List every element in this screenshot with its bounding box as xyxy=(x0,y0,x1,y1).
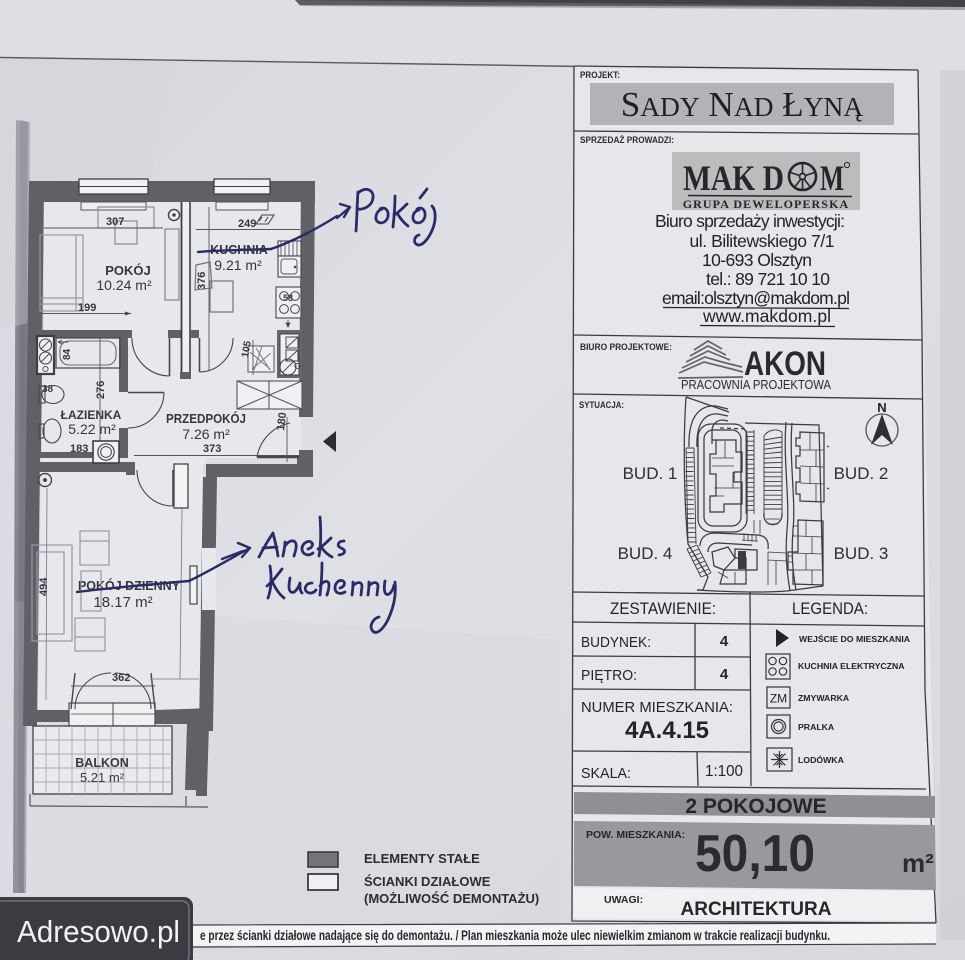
svg-text:307: 307 xyxy=(106,216,124,228)
svg-text:249: 249 xyxy=(238,218,256,230)
svg-text:84: 84 xyxy=(62,348,73,360)
svg-text:9.21 m²: 9.21 m² xyxy=(214,257,262,273)
svg-text:5.22 m²: 5.22 m² xyxy=(68,421,116,437)
svg-text:183: 183 xyxy=(70,443,88,455)
svg-text:376: 376 xyxy=(196,272,208,290)
svg-text:1:100: 1:100 xyxy=(705,763,743,780)
svg-text:ŁAZIENKA: ŁAZIENKA xyxy=(61,408,122,422)
svg-text:email:olsztyn@makdom.pl: email:olsztyn@makdom.pl xyxy=(662,288,850,308)
svg-text:7.26 m²: 7.26 m² xyxy=(182,426,230,442)
svg-text:N: N xyxy=(877,400,886,415)
svg-text:Adresowo.pl: Adresowo.pl xyxy=(17,914,180,949)
svg-text:www.makdom.pl: www.makdom.pl xyxy=(702,306,831,326)
svg-text:BUD. 2: BUD. 2 xyxy=(834,464,889,483)
svg-text:ŚCIANKI DZIAŁOWE: ŚCIANKI DZIAŁOWE xyxy=(364,874,491,889)
svg-text:2 POKOJOWE: 2 POKOJOWE xyxy=(685,795,826,818)
svg-text:ZESTAWIENIE:: ZESTAWIENIE: xyxy=(610,599,716,618)
svg-text:WEJŚCIE DO MIESZKANIA: WEJŚCIE DO MIESZKANIA xyxy=(799,633,911,644)
svg-text:180: 180 xyxy=(275,412,289,432)
svg-text:m²: m² xyxy=(902,848,934,878)
svg-text:LEGENDA:: LEGENDA: xyxy=(792,599,868,618)
svg-text:BUDYNEK:: BUDYNEK: xyxy=(581,634,651,651)
svg-text:BUD. 4: BUD. 4 xyxy=(618,544,673,563)
svg-text:199: 199 xyxy=(78,302,96,314)
svg-text:ZMYWARKA: ZMYWARKA xyxy=(798,693,850,703)
svg-text:PRACOWNIA PROJEKTOWA: PRACOWNIA PROJEKTOWA xyxy=(681,378,832,392)
svg-text:Biuro sprzedaży inwestycji:: Biuro sprzedaży inwestycji: xyxy=(655,211,845,231)
svg-text:BALKON: BALKON xyxy=(75,756,128,770)
svg-text:38: 38 xyxy=(42,384,54,395)
svg-text:50,10: 50,10 xyxy=(695,825,815,883)
svg-text:tel.: 89 721 10 10: tel.: 89 721 10 10 xyxy=(706,269,830,289)
svg-text:362: 362 xyxy=(112,672,130,684)
svg-text:373: 373 xyxy=(203,443,221,455)
svg-text:KUCHNIA ELEKTRYCZNA: KUCHNIA ELEKTRYCZNA xyxy=(798,661,905,671)
svg-text:SKALA:: SKALA: xyxy=(581,765,631,782)
svg-text:10-693 Olsztyn: 10-693 Olsztyn xyxy=(702,250,812,270)
svg-text:UWAGI:: UWAGI: xyxy=(604,894,643,906)
svg-text:LODÓWKA: LODÓWKA xyxy=(798,754,845,765)
svg-text:ZM: ZM xyxy=(770,692,787,706)
svg-text:ul. Bilitewskiego 7/1: ul. Bilitewskiego 7/1 xyxy=(690,231,835,251)
svg-text:4: 4 xyxy=(720,633,729,650)
svg-text:POKÓJ: POKÓJ xyxy=(105,263,151,278)
svg-text:ARCHITEKTURA: ARCHITEKTURA xyxy=(681,899,832,920)
svg-text:MAK D: MAK D xyxy=(683,158,784,198)
svg-text:PRALKA: PRALKA xyxy=(798,722,835,732)
svg-text:18.17 m²: 18.17 m² xyxy=(93,594,152,611)
svg-text:BIURO PROJEKTOWE:: BIURO PROJEKTOWE: xyxy=(580,342,672,353)
svg-text:10.24 m²: 10.24 m² xyxy=(96,277,152,293)
svg-text:PIĘTRO:: PIĘTRO: xyxy=(581,667,637,684)
svg-text:ELEMENTY STAŁE: ELEMENTY STAŁE xyxy=(364,851,480,866)
svg-text:494: 494 xyxy=(38,577,50,596)
svg-text:4: 4 xyxy=(720,666,729,683)
svg-text:5.21 m²: 5.21 m² xyxy=(80,770,125,785)
svg-text:e przez ścianki działowe nadaj: e przez ścianki działowe nadające się do… xyxy=(200,928,830,943)
svg-text:SPRZEDAŻ PROWADZI:: SPRZEDAŻ PROWADZI: xyxy=(580,135,674,146)
svg-text:SADY NAD ŁYNĄ: SADY NAD ŁYNĄ xyxy=(621,85,864,124)
svg-text:PROJEKT:: PROJEKT: xyxy=(580,70,620,81)
svg-text:4A.4.15: 4A.4.15 xyxy=(625,717,709,744)
svg-text:NUMER MIESZKANIA:: NUMER MIESZKANIA: xyxy=(581,699,733,716)
svg-text:276: 276 xyxy=(95,381,107,399)
svg-text:SYTUACJA:: SYTUACJA: xyxy=(579,400,624,411)
svg-text:GRUPA DEWELOPERSKA: GRUPA DEWELOPERSKA xyxy=(683,197,850,211)
svg-text:BUD. 3: BUD. 3 xyxy=(834,544,889,563)
svg-text:PRZEDPOKÓJ: PRZEDPOKÓJ xyxy=(166,411,246,426)
svg-text:BUD. 1: BUD. 1 xyxy=(623,464,678,483)
svg-text:(MOŻLIWOŚĆ DEMONTAŻU): (MOŻLIWOŚĆ DEMONTAŻU) xyxy=(364,891,539,906)
svg-text:POW. MIESZKANIA:: POW. MIESZKANIA: xyxy=(586,829,685,841)
svg-text:M: M xyxy=(820,158,844,198)
